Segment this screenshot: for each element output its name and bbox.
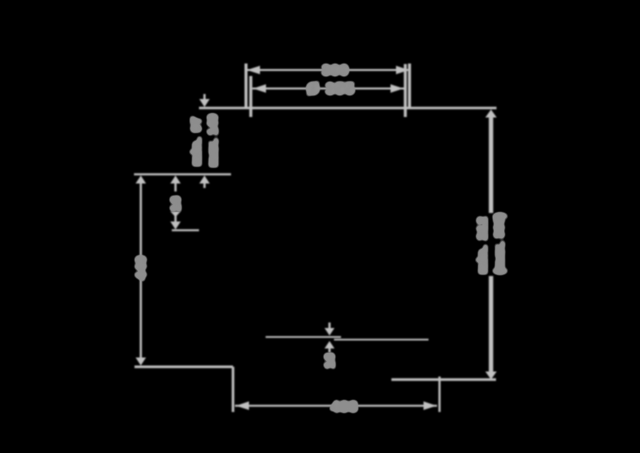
svg-text:16: 16 [322,353,337,369]
svg-text:440: 440 [132,255,148,280]
svg-text:(max. 300): (max. 300) [493,213,507,274]
svg-text:399: 399 [322,62,349,79]
svg-text:min. 97: min. 97 [189,116,204,166]
svg-text:max. 140: max. 140 [206,114,220,167]
svg-text:min. 212: min. 212 [475,216,490,274]
svg-text:488: 488 [331,399,358,416]
svg-text:16: 16 [168,196,183,212]
svg-text:Ø 355: Ø 355 [307,81,356,98]
